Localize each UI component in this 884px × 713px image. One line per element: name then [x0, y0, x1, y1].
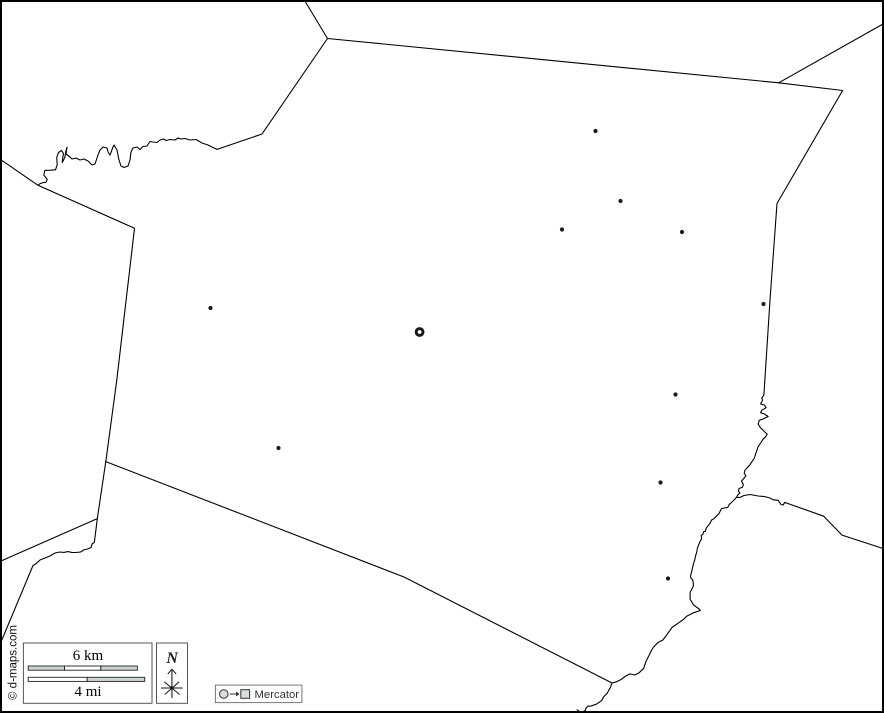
svg-text:Mercator: Mercator [255, 689, 300, 701]
svg-text:6 km: 6 km [73, 648, 104, 664]
svg-text:N: N [165, 650, 179, 667]
svg-text:4 mi: 4 mi [74, 684, 101, 700]
svg-text:© d-maps.com: © d-maps.com [8, 625, 20, 700]
